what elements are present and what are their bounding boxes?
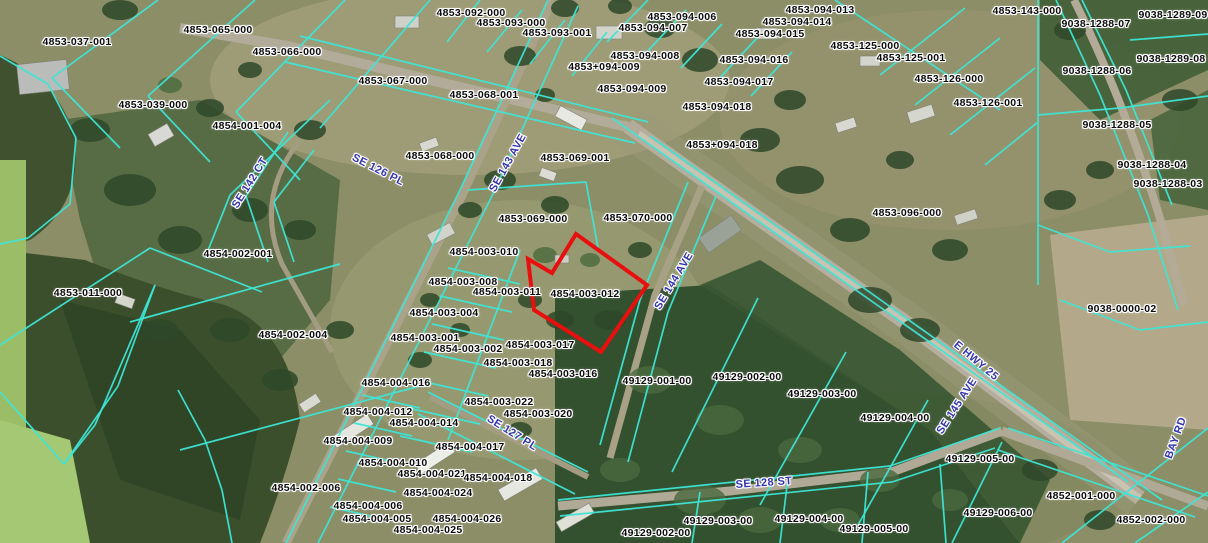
parcel-boundary-line [915,38,1000,105]
parcel-boundary-line [447,0,480,42]
parcel-boundary-line [95,285,155,425]
parcel-boundary-line [692,492,700,543]
parcel-boundary-line [1148,215,1178,310]
parcel-boundary-line [558,466,890,500]
parcel-boundary-line [1060,300,1140,330]
parcel-boundary-line [1100,95,1148,215]
parcel-boundary-line [468,182,586,190]
parcel-boundary-line [835,0,1000,110]
parcel-boundary-line [672,298,758,472]
parcel-boundary-line [892,448,995,482]
parcel-boundary-line [148,96,210,162]
parcel-boundary-line [400,436,472,452]
parcel-boundary-line [586,182,598,248]
parcel-boundary-line [130,264,340,322]
parcel-boundary-line [246,132,288,196]
parcel-boundary-line [890,428,1000,466]
parcel-layer [0,0,1208,543]
parcel-boundary-line [950,68,1035,135]
parcel-boundary-line [1110,246,1190,252]
parcel-boundary-line [1008,428,1208,496]
parcel-boundary-line [460,0,548,190]
parcel-boundary-line [858,400,928,525]
parcel-boundary-line [432,324,504,340]
selected-parcel-outline[interactable] [528,234,647,352]
parcel-boundary-line [560,482,892,516]
parcel-boundary-line [1082,0,1126,90]
parcel-boundary-line [408,408,480,424]
parcel-boundary-line [180,386,420,450]
parcel-boundary-line [985,122,1038,165]
parcel-boundary-line [0,392,64,464]
parcel-boundary-line [751,52,792,96]
parcel-boundary-line [205,440,222,490]
parcel-boundary-line [354,423,412,436]
parcel-boundary-line [236,112,300,180]
parcel-boundary-line [1056,0,1100,95]
parcel-boundary-line [448,268,520,284]
parcel-boundary-line [70,138,76,204]
parcel-boundary-line [448,250,520,440]
parcel-boundary-line [330,507,388,520]
parcel-boundary-line [1120,96,1208,108]
parcel-boundary-line [230,100,330,195]
parcel-boundary-line [148,0,255,96]
parcel-boundary-line [424,352,496,368]
parcel-boundary-line [681,24,722,68]
parcel-boundary-line [346,451,404,464]
parcel-boundary-line [286,190,460,543]
parcel-boundary-line [52,0,158,78]
parcel-boundary-line [246,196,268,262]
parcel-boundary-line [1130,34,1208,40]
parcel-boundary-line [760,352,846,505]
parcel-boundary-line [222,490,232,543]
parcel-boundary-line [628,312,668,462]
parcel-boundary-line [0,56,48,84]
parcel-boundary-line [572,32,607,76]
parcel-boundary-line [178,390,205,440]
parcel-boundary-line [716,38,757,82]
parcel-boundary-line [300,36,648,122]
parcel-boundary-line [940,464,946,543]
parcel-boundary-line [880,8,965,75]
parcel-boundary-line [64,386,118,464]
parcel-boundary-line [1038,225,1110,252]
parcel-boundary-line [650,136,1162,500]
parcel-boundary-line [236,0,345,112]
parcel-boundary-line [1126,90,1172,205]
parcel-boundary-line [612,118,1128,482]
parcel-boundary-line [274,202,294,262]
parcel-boundary-line [48,84,76,138]
map-viewport[interactable]: 4853-037-0014853-065-0004853-066-0004853… [0,0,1208,543]
parcel-boundary-line [952,442,1002,543]
parcel-boundary-line [0,248,150,345]
parcel-boundary-line [285,62,635,143]
parcel-boundary-line [28,204,70,238]
parcel-boundary-line [645,10,686,54]
parcel-boundary-line [416,380,488,396]
parcel-boundary-line [487,10,522,52]
parcel-boundary-line [0,238,28,244]
parcel-boundary-line [607,0,648,42]
parcel-boundary-line [118,285,155,386]
parcel-boundary-line [318,196,492,543]
parcel-boundary-line [780,478,788,543]
parcel-boundary-line [1140,322,1208,330]
parcel-boundary-line [205,195,230,258]
